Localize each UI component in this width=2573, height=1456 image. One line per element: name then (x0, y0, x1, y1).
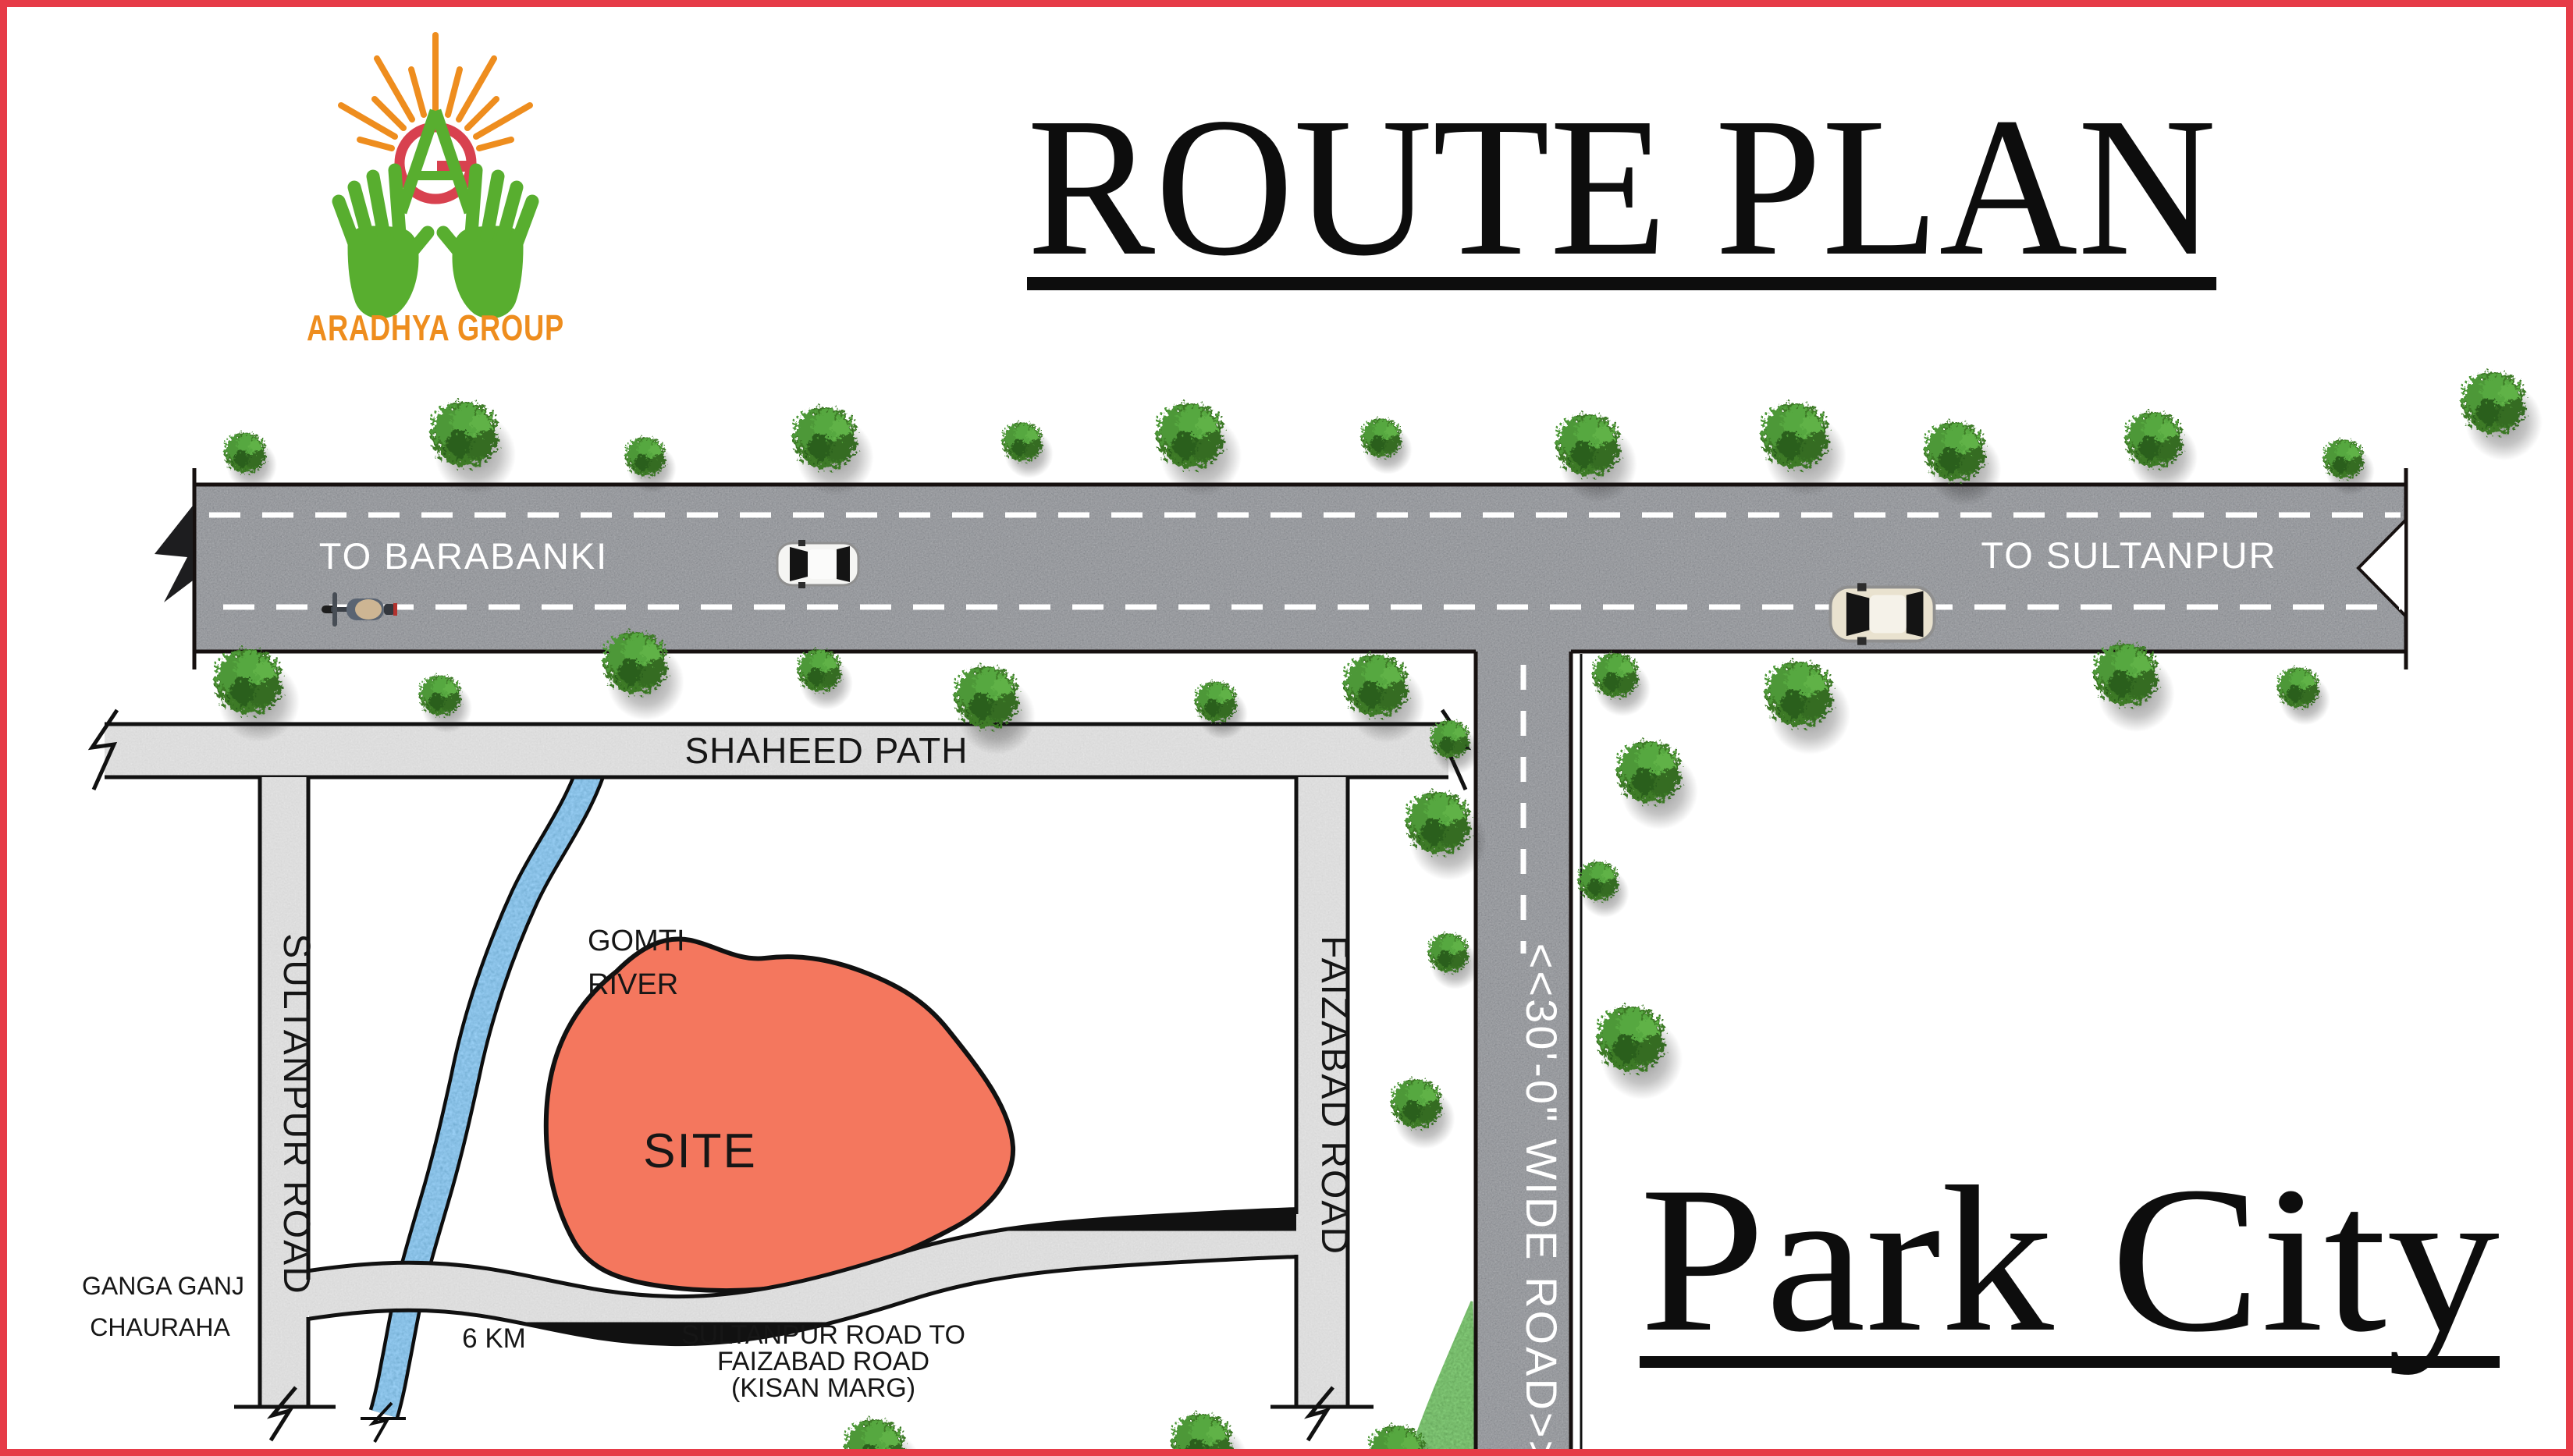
tree-icon (1392, 1079, 1455, 1149)
wide-road-label: <<30'-0" WIDE ROAD>> (1517, 943, 1566, 1456)
ganga-ganj-label-line2: CHAURAHA (90, 1313, 230, 1341)
grass-strip (1409, 1302, 1476, 1456)
title-underline (1027, 277, 2216, 290)
white-car-icon (777, 540, 858, 588)
gomti-river-label-line1: GOMTI (588, 925, 685, 957)
route-map: SHAHEED PATH SULTANPUR ROAD FAIZABAD ROA… (0, 0, 2573, 1456)
kisan-marg-label-line2: FAIZABAD ROAD (717, 1347, 929, 1376)
hands-icon (339, 170, 532, 318)
tree-icon (1003, 422, 1054, 478)
tree-icon (2278, 667, 2330, 725)
sultanpur-road-label: SULTANPUR ROAD (275, 933, 317, 1295)
page-title: ROUTE PLAN (1027, 77, 2216, 297)
tree-icon (1618, 740, 1698, 829)
main-highway: TO BARABANKI TO SULTANPUR (155, 468, 2407, 669)
route-plan-poster: SHAHEED PATH SULTANPUR ROAD FAIZABAD ROA… (0, 0, 2573, 1456)
kisan-marg-label-line3: (KISAN MARG) (731, 1373, 915, 1403)
wide-road: <<30'-0" WIDE ROAD>> (1476, 652, 1581, 1456)
faizabad-road: FAIZABAD ROAD (1271, 777, 1374, 1440)
to-barabanki-label: TO BARABANKI (319, 535, 609, 577)
tree-icon (1762, 403, 1846, 496)
faizabad-road-label: FAIZABAD ROAD (1313, 936, 1355, 1255)
distance-label: 6 KM (462, 1323, 526, 1354)
project-name-underline (1640, 1356, 2500, 1368)
tree-icon (432, 401, 516, 495)
tree-icon (1429, 933, 1480, 989)
tree-icon (1766, 661, 1850, 755)
tree-icon (2462, 371, 2543, 460)
sultanpur-road: SULTANPUR ROAD (234, 777, 336, 1440)
road-arrow-icon (155, 506, 193, 602)
tree-icon (225, 432, 277, 490)
tree-icon (1598, 1006, 1683, 1099)
tree-icon (2126, 411, 2198, 491)
beige-car-icon (1830, 583, 1934, 645)
tree-icon (845, 1419, 921, 1456)
to-sultanpur-label: TO SULTANPUR (1981, 534, 2276, 576)
tree-icon (1172, 1413, 1248, 1456)
shaheed-path-label: SHAHEED PATH (684, 730, 968, 771)
tree-icon (1157, 403, 1242, 496)
gomti-river-label-line2: RIVER (588, 968, 678, 1001)
tree-icon (2095, 643, 2175, 732)
project-name: Park City (1640, 1143, 2500, 1376)
aradhya-logo: ARADHYA GROUP (307, 35, 564, 348)
brand-name: ARADHYA GROUP (307, 307, 564, 348)
site-label: SITE (643, 1124, 757, 1178)
tree-icon (798, 649, 853, 710)
tree-icon (1362, 418, 1413, 474)
tree-icon (1579, 861, 1629, 918)
tree-icon (1593, 652, 1650, 716)
ganga-ganj-label-line1: GANGA GANJ (82, 1272, 244, 1300)
tree-icon (794, 407, 874, 495)
kisan-marg-label-line1: SULTANPUR ROAD TO (681, 1320, 965, 1350)
